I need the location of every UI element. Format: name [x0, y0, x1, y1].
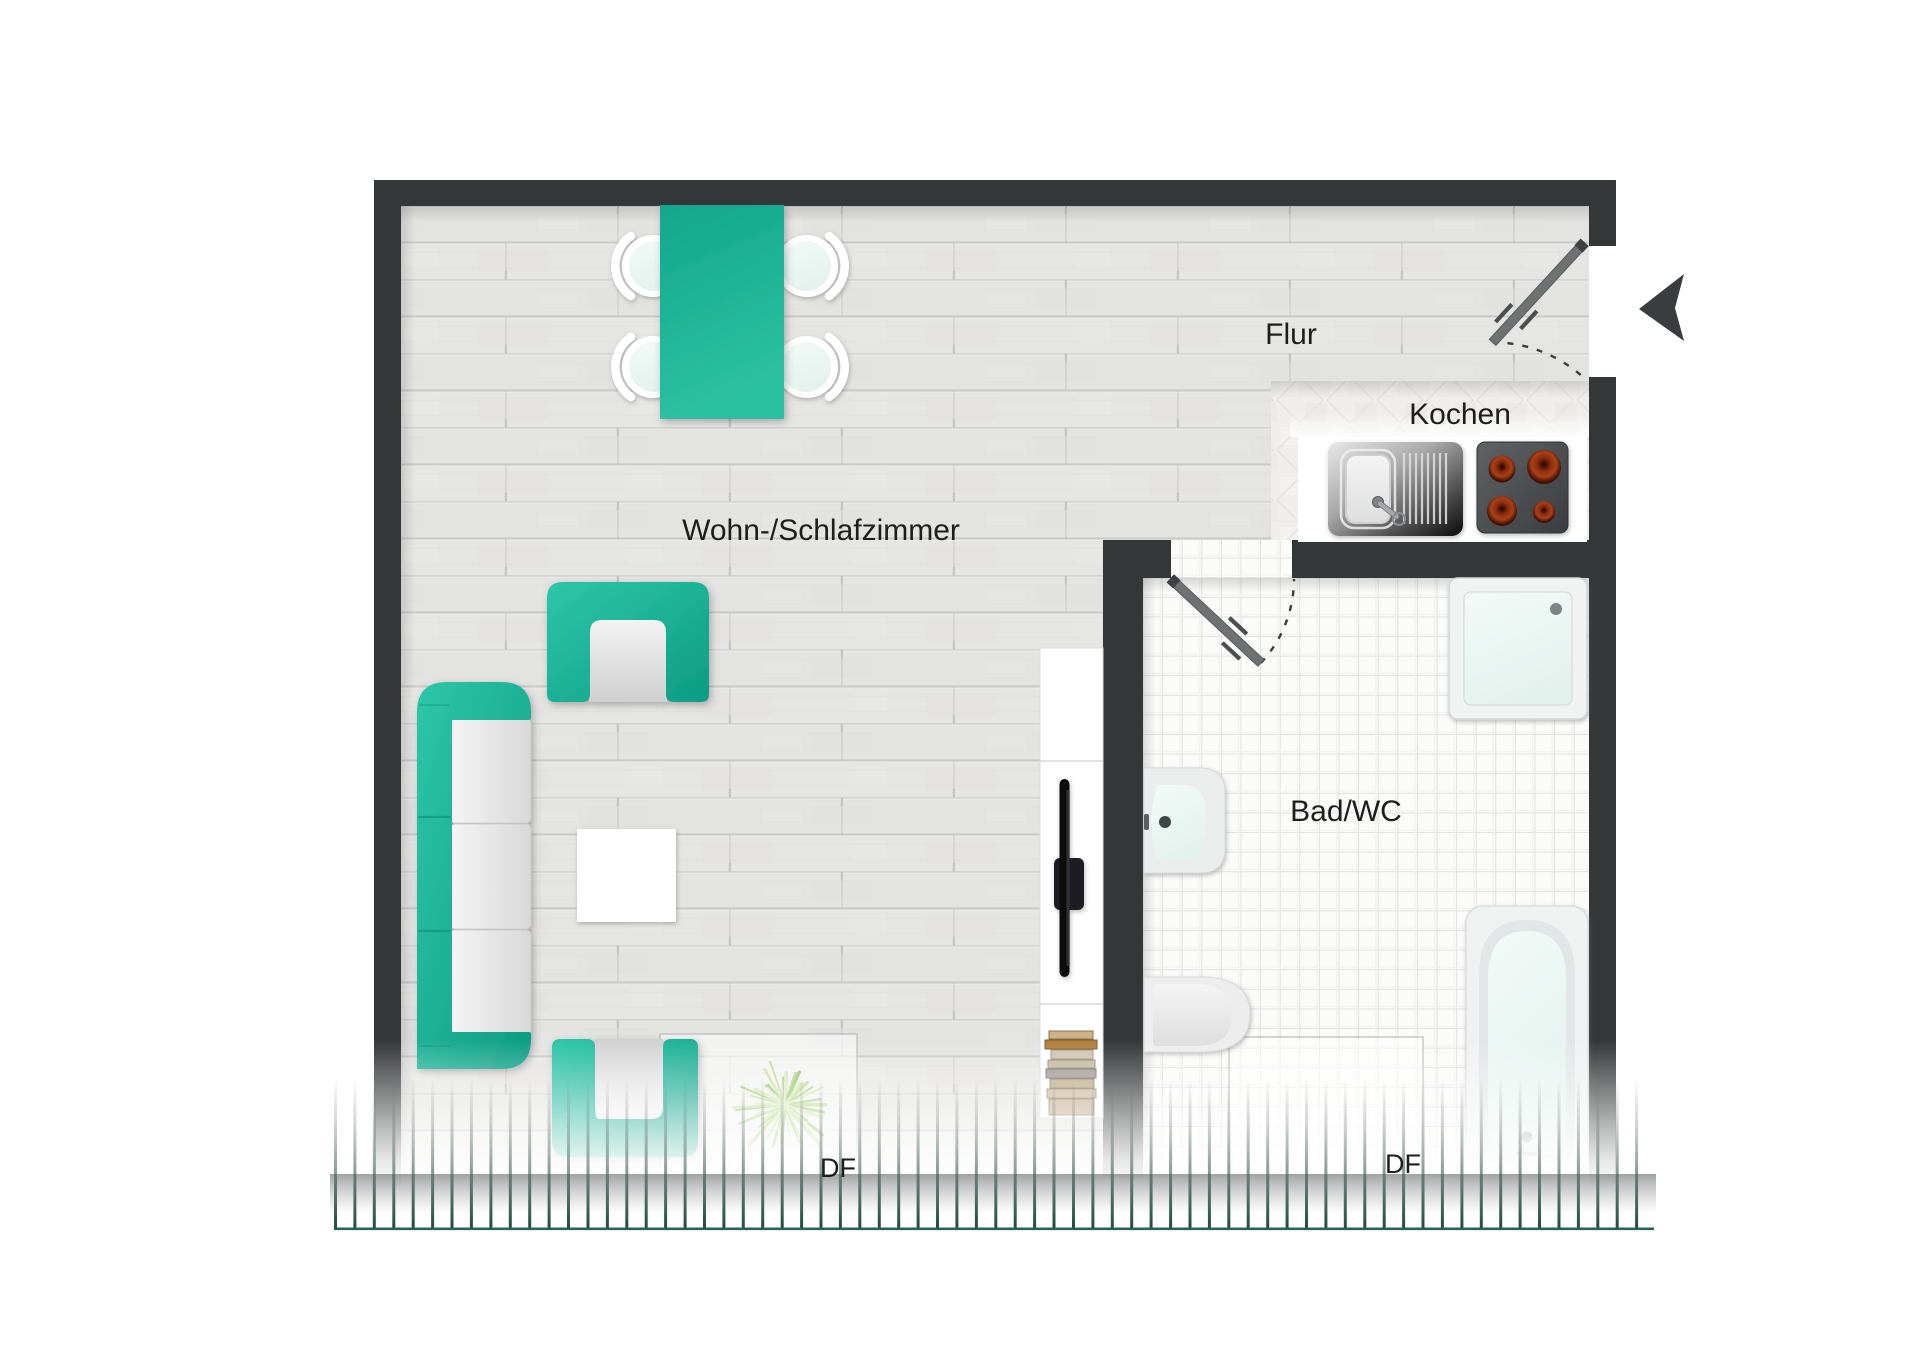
svg-text:DF: DF — [1385, 1149, 1421, 1179]
svg-text:DF: DF — [820, 1153, 856, 1183]
svg-text:Flur: Flur — [1265, 318, 1317, 351]
svg-text:Wohn-/Schlafzimmer: Wohn-/Schlafzimmer — [682, 514, 960, 547]
svg-text:Kochen: Kochen — [1409, 398, 1511, 431]
svg-text:Bad/WC: Bad/WC — [1290, 795, 1402, 828]
